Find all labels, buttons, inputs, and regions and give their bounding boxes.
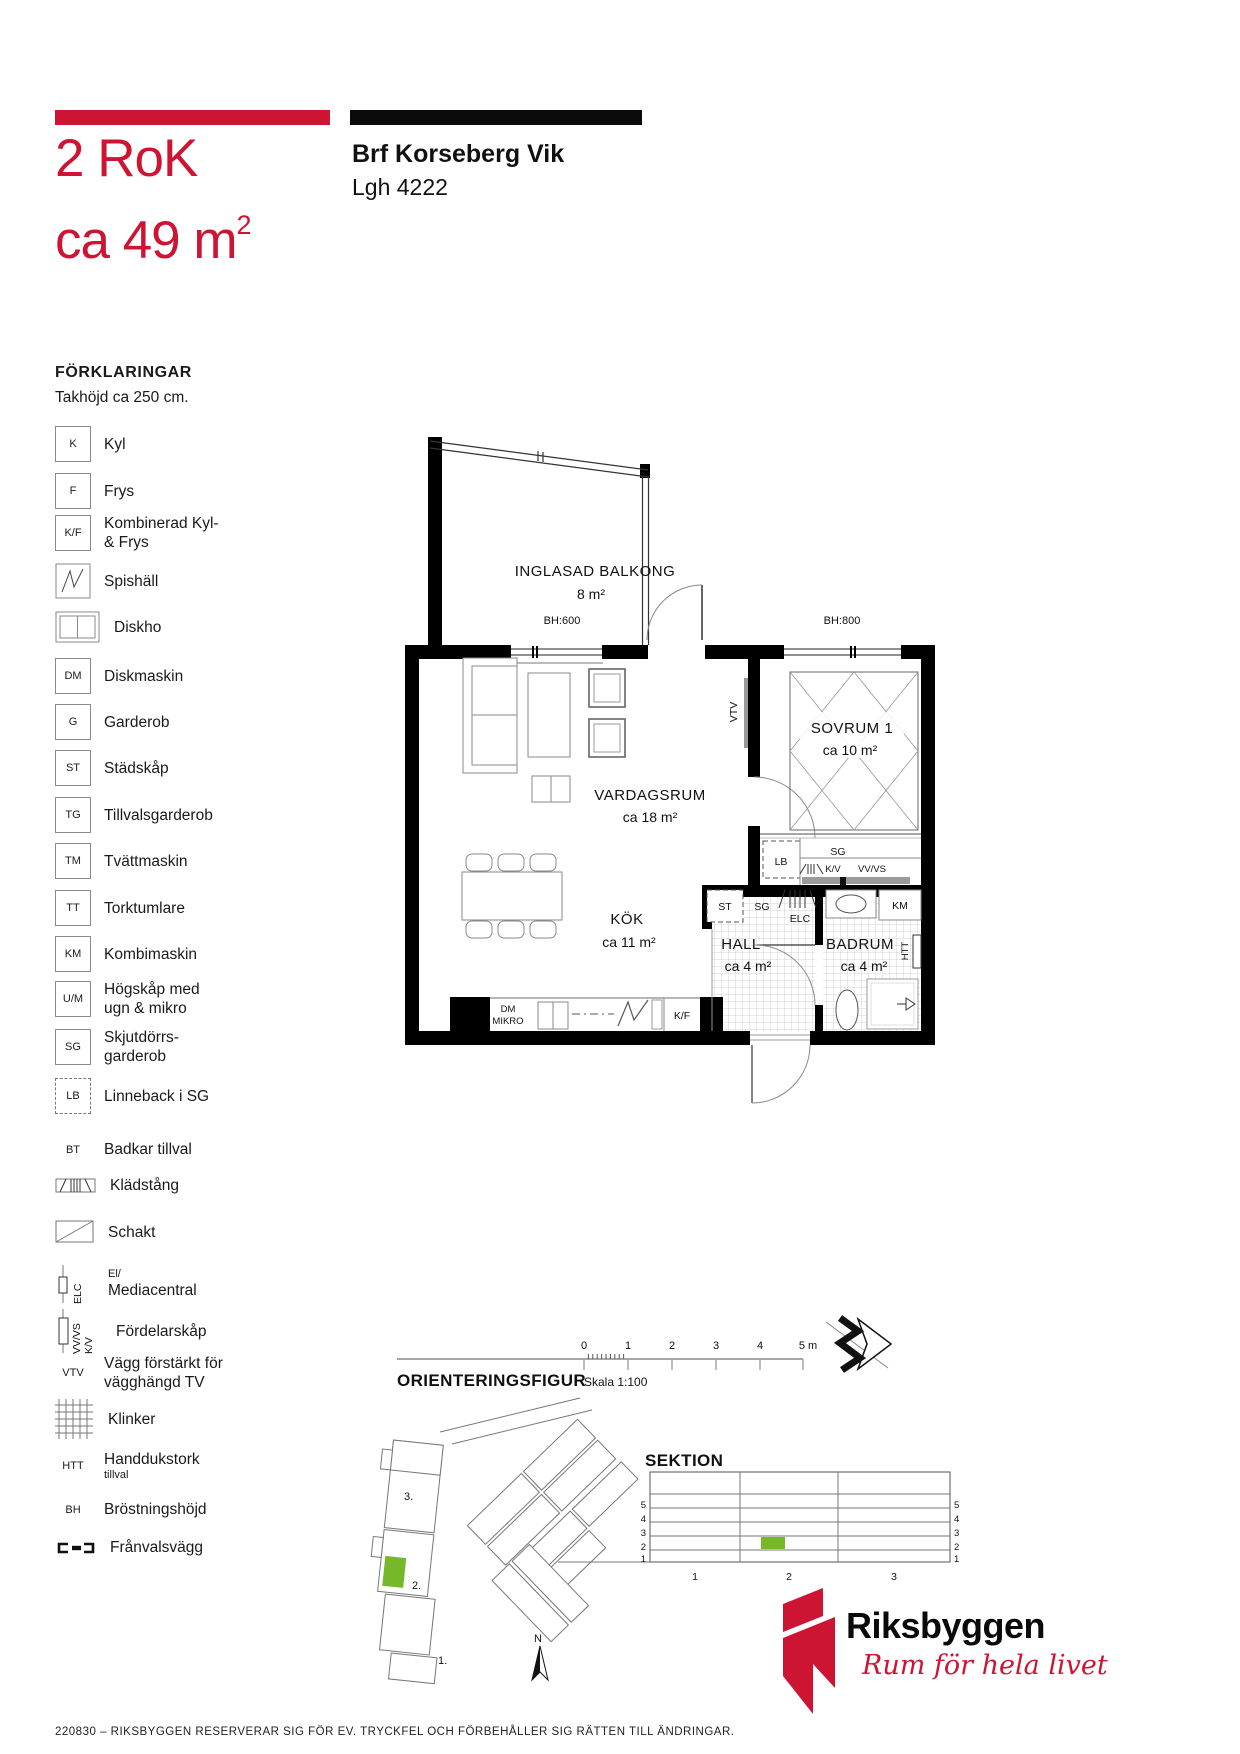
legend-symbol-g: G: [55, 704, 91, 740]
vtv-wall-marker: [744, 678, 748, 748]
legend-symbol-tt: TT: [55, 890, 91, 926]
shaft-icon: [55, 1220, 95, 1244]
legend-item-kladstang: Klädstång: [55, 1176, 179, 1195]
svg-text:3: 3: [641, 1528, 646, 1539]
svg-text:3: 3: [954, 1528, 959, 1539]
title-area-sup: 2: [237, 210, 251, 240]
svg-text:2: 2: [954, 1542, 959, 1553]
title-area: ca 49 m2: [55, 192, 251, 274]
legend-item-stadskap: ST Städskåp: [55, 750, 169, 786]
site-plan: [359, 1398, 657, 1684]
legend-item-spishall: Spishäll: [55, 562, 158, 600]
stove-icon: [55, 562, 91, 600]
bedroom-area: ca 10 m²: [823, 742, 878, 758]
clothes-rail-icon: [55, 1177, 97, 1195]
vvvs-label: VV/VS: [858, 864, 886, 875]
closet-sg-label: SG: [830, 846, 845, 858]
legend-item-garderob: G Garderob: [55, 704, 169, 740]
legend-symbol-lb: LB: [55, 1078, 91, 1114]
bedroom-label: SOVRUM 1: [811, 720, 893, 737]
title-rooms: 2 RoK: [55, 126, 251, 192]
svg-text:1: 1: [954, 1554, 959, 1565]
bathroom-label: BADRUM: [826, 936, 894, 953]
legend-item-schakt: Schakt: [55, 1220, 155, 1244]
mikro-label: MIKRO: [492, 1016, 523, 1027]
section-floor-numbers-left: 5 4 3 2 1: [641, 1500, 646, 1565]
brochure-page: 2 RoK ca 49 m2 Brf Korseberg Vik Lgh 422…: [0, 0, 1240, 1754]
kitchen-area: ca 11 m²: [602, 934, 656, 950]
section-bay-numbers: 1 2 3: [692, 1571, 897, 1583]
legend-symbol-sg: SG: [55, 1029, 91, 1065]
legend-ceiling-height: Takhöjd ca 250 cm.: [55, 389, 189, 407]
elc-label: ELC: [790, 913, 811, 925]
legend-heading: FÖRKLARINGAR: [55, 364, 192, 382]
dm-label: DM: [501, 1004, 516, 1015]
north-arrow-icon: [826, 1318, 891, 1370]
legend-item-kombimaskin: KM Kombimaskin: [55, 936, 197, 972]
hall-area: ca 4 m²: [725, 958, 772, 974]
legend-symbol-dm: DM: [55, 658, 91, 694]
legend-item-skjutdorrsgarderob: SG Skjutdörrs- garderob: [55, 1028, 179, 1066]
riksbyggen-logo-icon: [783, 1588, 835, 1714]
highlighted-unit: [382, 1556, 406, 1588]
kitchen-label: KÖK: [610, 910, 643, 928]
brand-name: Riksbyggen: [846, 1605, 1045, 1647]
black-accent-bar: [350, 110, 642, 125]
vtv-label: VTV: [728, 702, 740, 722]
legend-item-diskho: Diskho: [55, 610, 161, 644]
north-label: N: [534, 1633, 542, 1645]
legend-symbol-k: K: [55, 426, 91, 462]
legend-item-frys: F Frys: [55, 473, 134, 509]
compass: N: [532, 1633, 548, 1680]
dining-set: [462, 854, 562, 938]
sink-icon: [55, 610, 101, 644]
livingroom-label: VARDAGSRUM: [594, 787, 705, 804]
section-heading: SEKTION: [645, 1451, 723, 1470]
brand-tagline: Rum för hela livet: [862, 1650, 1108, 1681]
svg-text:3: 3: [891, 1571, 897, 1583]
balcony-label: INGLASAD BALKONG: [515, 563, 676, 580]
apartment-number: Lgh 4222: [352, 174, 448, 201]
hall-sg-label: SG: [754, 901, 769, 913]
legend-symbol-kf: K/F: [55, 515, 91, 551]
project-name: Brf Korseberg Vik: [352, 140, 564, 169]
legend-symbol-um: U/M: [55, 981, 91, 1017]
svg-text:1: 1: [641, 1554, 646, 1565]
svg-text:1: 1: [692, 1571, 698, 1583]
building-2-label: 2.: [412, 1580, 421, 1592]
legend-symbol-f: F: [55, 473, 91, 509]
scale-tick-4: 4: [757, 1340, 763, 1352]
svg-text:2: 2: [641, 1542, 646, 1553]
building-3-label: 3.: [404, 1491, 413, 1503]
scale-tick-2: 2: [669, 1340, 675, 1352]
livingroom-furniture: [463, 658, 625, 802]
hall-label: HALL: [721, 936, 761, 953]
livingroom-area: ca 18 m²: [623, 809, 678, 825]
balcony-glazing: [430, 441, 649, 645]
st-label: ST: [718, 901, 732, 913]
legend-item-kf: K/F Kombinerad Kyl- & Frys: [55, 514, 219, 552]
balcony-area: 8 m²: [577, 586, 605, 602]
kf-label: K/F: [674, 1010, 690, 1022]
legend-item-tvattmaskin: TM Tvättmaskin: [55, 843, 188, 879]
scale-tick-1: 1: [625, 1340, 631, 1352]
section-floor-numbers-right: 5 4 3 2 1: [954, 1500, 959, 1565]
scale-tick-3: 3: [713, 1340, 719, 1352]
bh600-label: BH:600: [544, 615, 581, 627]
scale-tick-0: 0: [581, 1340, 587, 1352]
legend-item-hogskap: U/M Högskåp med ugn & mikro: [55, 980, 200, 1018]
bottom-graphics: 0 1 2 3 4 5 m Skala 1:100: [0, 1295, 1240, 1754]
scale-tick-5: 5 m: [799, 1340, 817, 1352]
legend-symbol-tg: TG: [55, 797, 91, 833]
legend-item-badkar: BT Badkar tillval: [55, 1140, 192, 1159]
highlighted-floor-cell: [761, 1537, 785, 1549]
orientation-heading: ORIENTERINGSFIGUR: [397, 1371, 586, 1390]
kv-label: K/V: [825, 864, 841, 875]
legend-item-kyl: K Kyl: [55, 426, 126, 462]
bh800-label: BH:800: [824, 615, 861, 627]
bathroom-area: ca 4 m²: [841, 958, 888, 974]
legend-item-torktumlare: TT Torktumlare: [55, 890, 185, 926]
legend-item-diskmaskin: DM Diskmaskin: [55, 658, 183, 694]
legend-symbol-tm: TM: [55, 843, 91, 879]
apartment-title: 2 RoK ca 49 m2: [55, 126, 251, 274]
legend-symbol-st: ST: [55, 750, 91, 786]
km-label: KM: [892, 900, 908, 912]
svg-text:2: 2: [786, 1571, 792, 1583]
svg-text:4: 4: [954, 1514, 959, 1525]
footer-disclaimer: 220830 – RIKSBYGGEN RESERVERAR SIG FÖR E…: [55, 1726, 734, 1738]
building-1-label: 1.: [438, 1655, 447, 1667]
legend-symbol-bt: BT: [55, 1144, 91, 1156]
lb-label: LB: [775, 856, 788, 868]
legend-item-tillvalsgarderob: TG Tillvalsgarderob: [55, 797, 213, 833]
svg-text:5: 5: [954, 1500, 959, 1511]
scale-label: Skala 1:100: [584, 1375, 648, 1389]
floor-plan: INGLASAD BALKONG 8 m² BH:600 BH:800 VARD…: [385, 425, 955, 1125]
red-accent-bar: [55, 110, 330, 125]
htt-label: HTT: [900, 942, 911, 961]
svg-text:4: 4: [641, 1514, 646, 1525]
svg-text:5: 5: [641, 1500, 646, 1511]
legend-item-linneback: LB Linneback i SG: [55, 1078, 209, 1114]
legend-symbol-km: KM: [55, 936, 91, 972]
